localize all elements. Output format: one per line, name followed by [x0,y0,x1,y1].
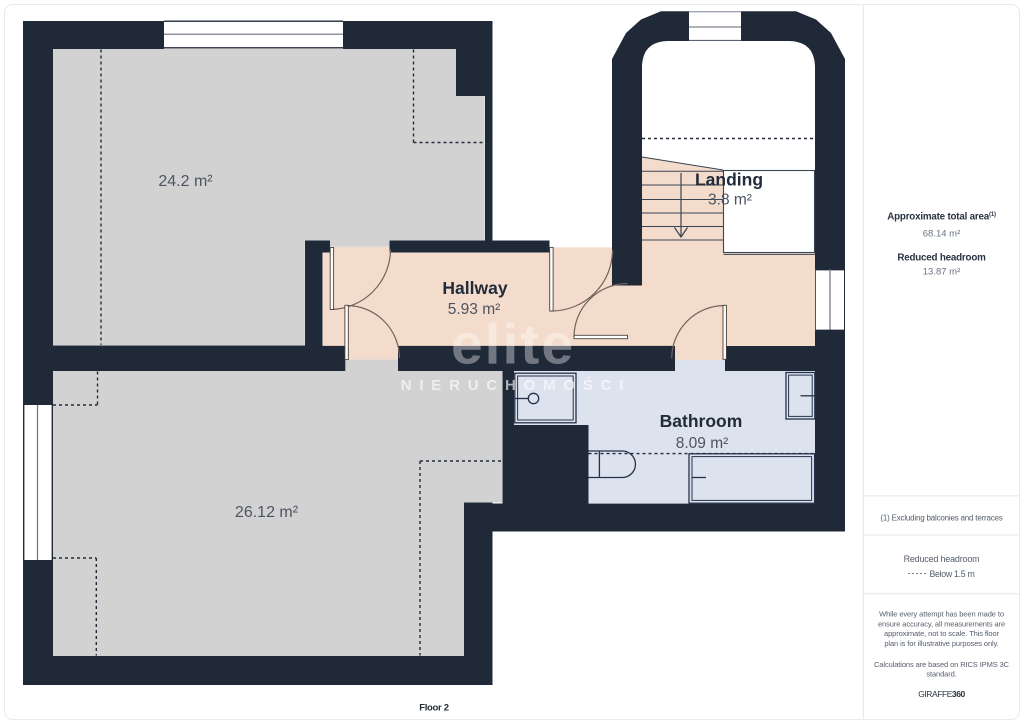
svg-text:Bathroom: Bathroom [660,411,743,431]
svg-text:elite: elite [451,313,575,377]
svg-text:8.09 m²: 8.09 m² [676,435,729,452]
svg-text:GIRAFFE360: GIRAFFE360 [918,689,965,699]
svg-text:Landing: Landing [695,170,763,190]
svg-text:Hallway: Hallway [442,278,507,298]
svg-text:Reduced headroom: Reduced headroom [904,554,980,564]
svg-text:3.8 m²: 3.8 m² [708,192,752,209]
svg-text:(1) Excluding balconies and te: (1) Excluding balconies and terraces [880,513,1002,522]
svg-text:approximate, not to scale. Thi: approximate, not to scale. This floor [884,629,1000,638]
svg-text:24.2 m²: 24.2 m² [158,173,213,190]
svg-text:Calculations are based on RICS: Calculations are based on RICS IPMS 3C [874,660,1010,669]
svg-text:Floor 2: Floor 2 [419,703,449,714]
svg-text:13.87 m²: 13.87 m² [923,267,961,278]
svg-text:Approximate total area(1): Approximate total area(1) [887,212,996,223]
svg-text:68.14 m²: 68.14 m² [923,229,961,240]
svg-text:standard.: standard. [926,670,956,679]
svg-text:NIERUCHOMOŚCI: NIERUCHOMOŚCI [401,376,632,394]
svg-text:Below 1.5 m: Below 1.5 m [929,569,974,579]
svg-text:26.12 m²: 26.12 m² [235,504,299,521]
svg-text:5.93 m²: 5.93 m² [448,301,501,318]
svg-text:While every attempt has been m: While every attempt has been made to [879,610,1004,619]
svg-text:Reduced headroom: Reduced headroom [897,253,986,264]
svg-text:plan is for illustrative purpo: plan is for illustrative purposes only. [884,639,998,648]
svg-text:ensure accuracy, all measureme: ensure accuracy, all measurements are [878,619,1005,628]
